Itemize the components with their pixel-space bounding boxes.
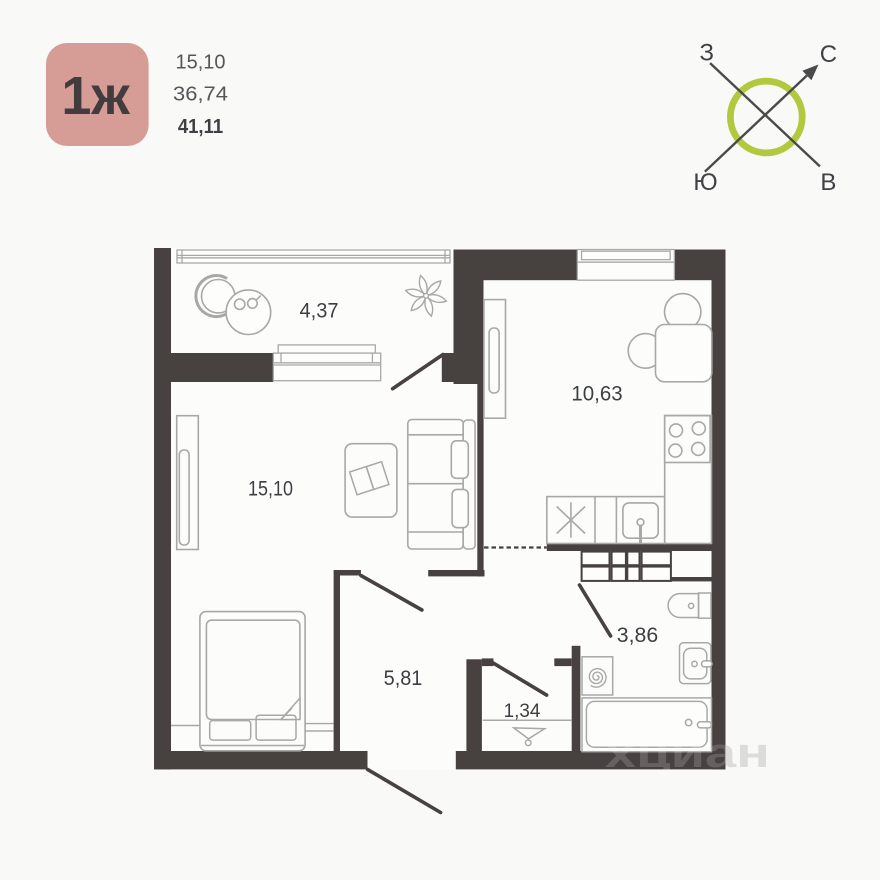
svg-text:41,11: 41,11 [178, 115, 223, 138]
svg-text:С: С [820, 41, 837, 68]
svg-text:15,10: 15,10 [248, 477, 293, 501]
svg-text:3,86: 3,86 [617, 623, 658, 647]
svg-text:4,37: 4,37 [300, 299, 339, 323]
svg-text:15,10: 15,10 [176, 50, 226, 73]
svg-text:36,74: 36,74 [173, 83, 228, 106]
svg-text:10,63: 10,63 [571, 382, 622, 406]
svg-text:З: З [700, 40, 715, 67]
svg-text:Ю: Ю [693, 169, 717, 196]
svg-text:1,34: 1,34 [504, 701, 541, 722]
svg-text:В: В [820, 169, 836, 196]
svg-text:1ж: 1ж [61, 66, 130, 126]
svg-text:5,81: 5,81 [384, 666, 423, 690]
